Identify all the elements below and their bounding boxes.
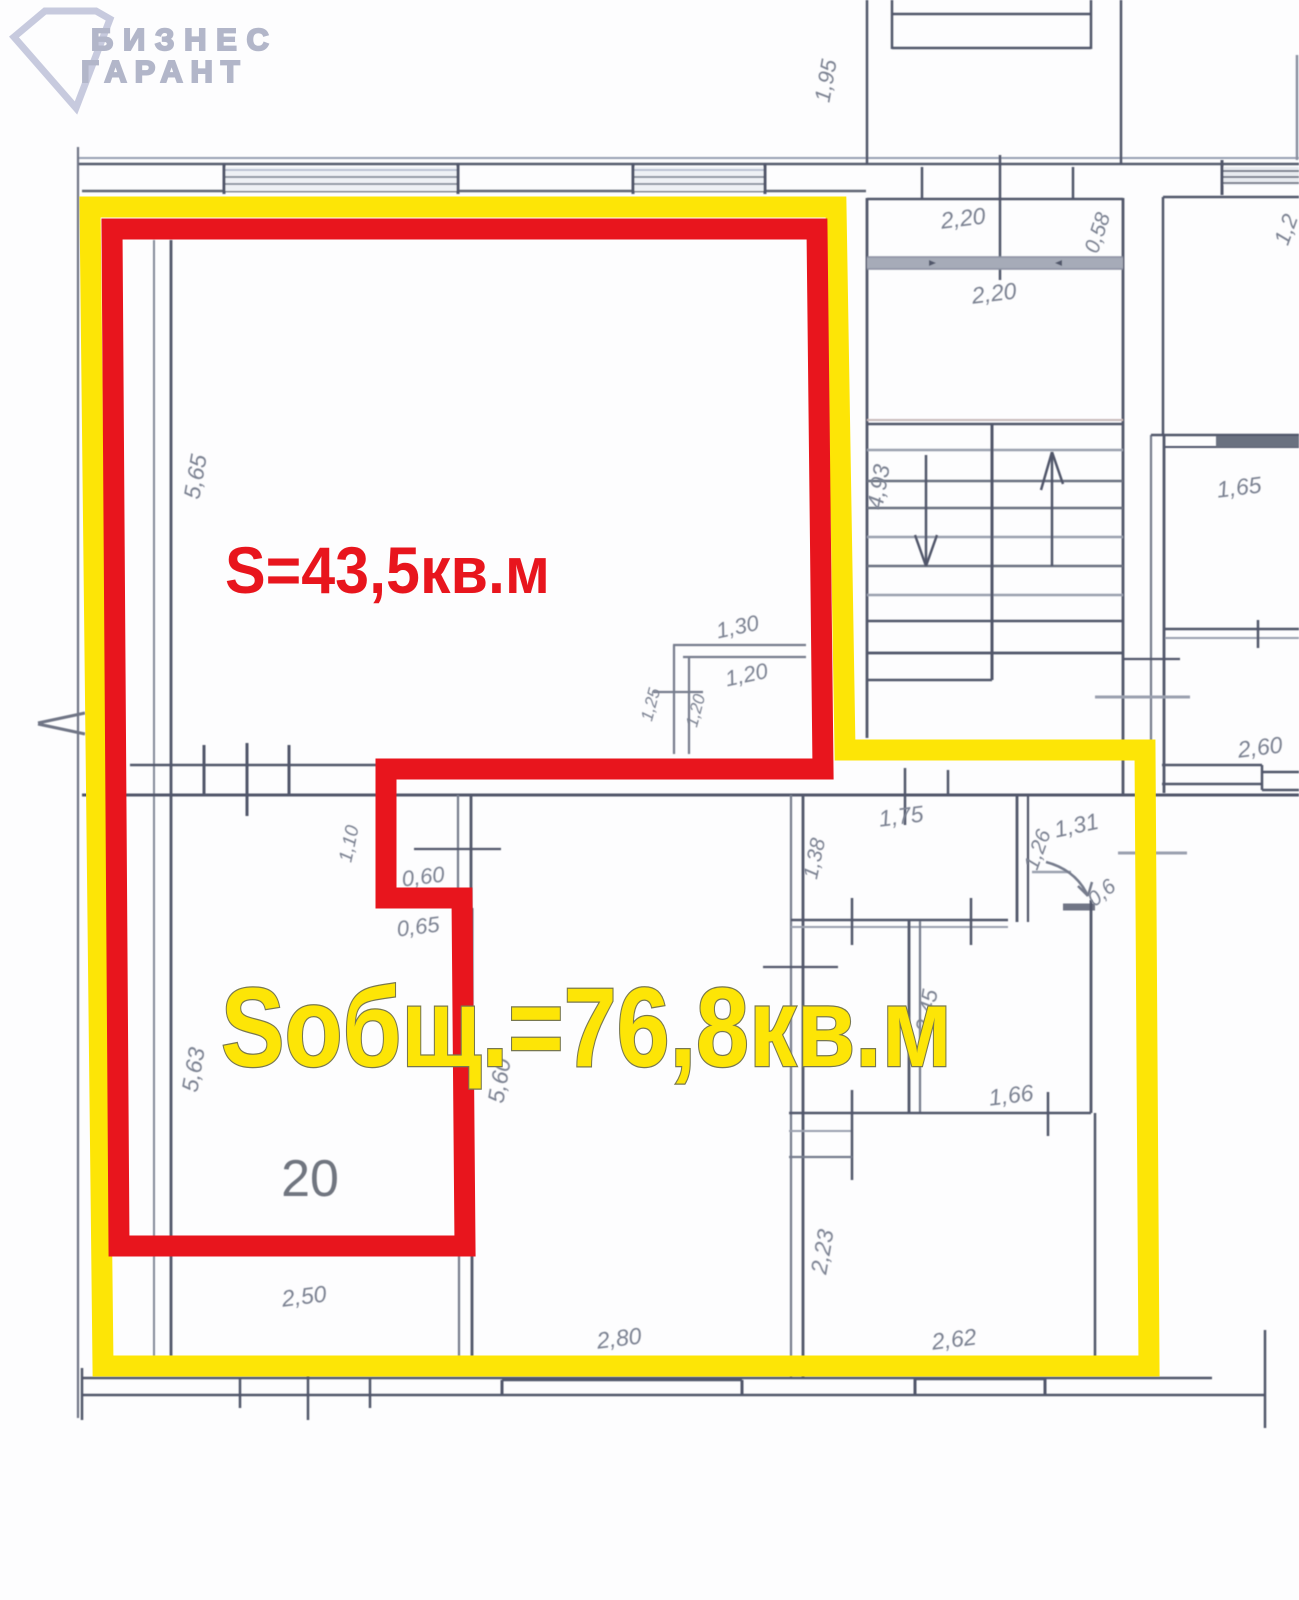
svg-text:2,62: 2,62 <box>929 1323 978 1354</box>
svg-text:2,50: 2,50 <box>279 1280 328 1311</box>
svg-text:0,65: 0,65 <box>395 911 441 941</box>
svg-text:2,60: 2,60 <box>1235 731 1284 762</box>
svg-text:1,66: 1,66 <box>987 1079 1035 1110</box>
svg-text:2,20: 2,20 <box>969 277 1018 308</box>
svg-text:1,75: 1,75 <box>877 800 925 831</box>
svg-text:2,20: 2,20 <box>938 202 987 233</box>
svg-text:2,80: 2,80 <box>594 1322 643 1353</box>
svg-text:Sобщ.=76,8кв.м: Sобщ.=76,8кв.м <box>221 965 952 1090</box>
svg-text:БИЗНЕС: БИЗНЕС <box>91 22 279 57</box>
svg-text:1,65: 1,65 <box>1215 471 1263 502</box>
svg-text:0,60: 0,60 <box>400 861 446 891</box>
svg-text:20: 20 <box>281 1150 339 1208</box>
svg-text:ГАРАНТ: ГАРАНТ <box>81 54 247 89</box>
svg-text:S=43,5кв.м: S=43,5кв.м <box>225 533 550 607</box>
